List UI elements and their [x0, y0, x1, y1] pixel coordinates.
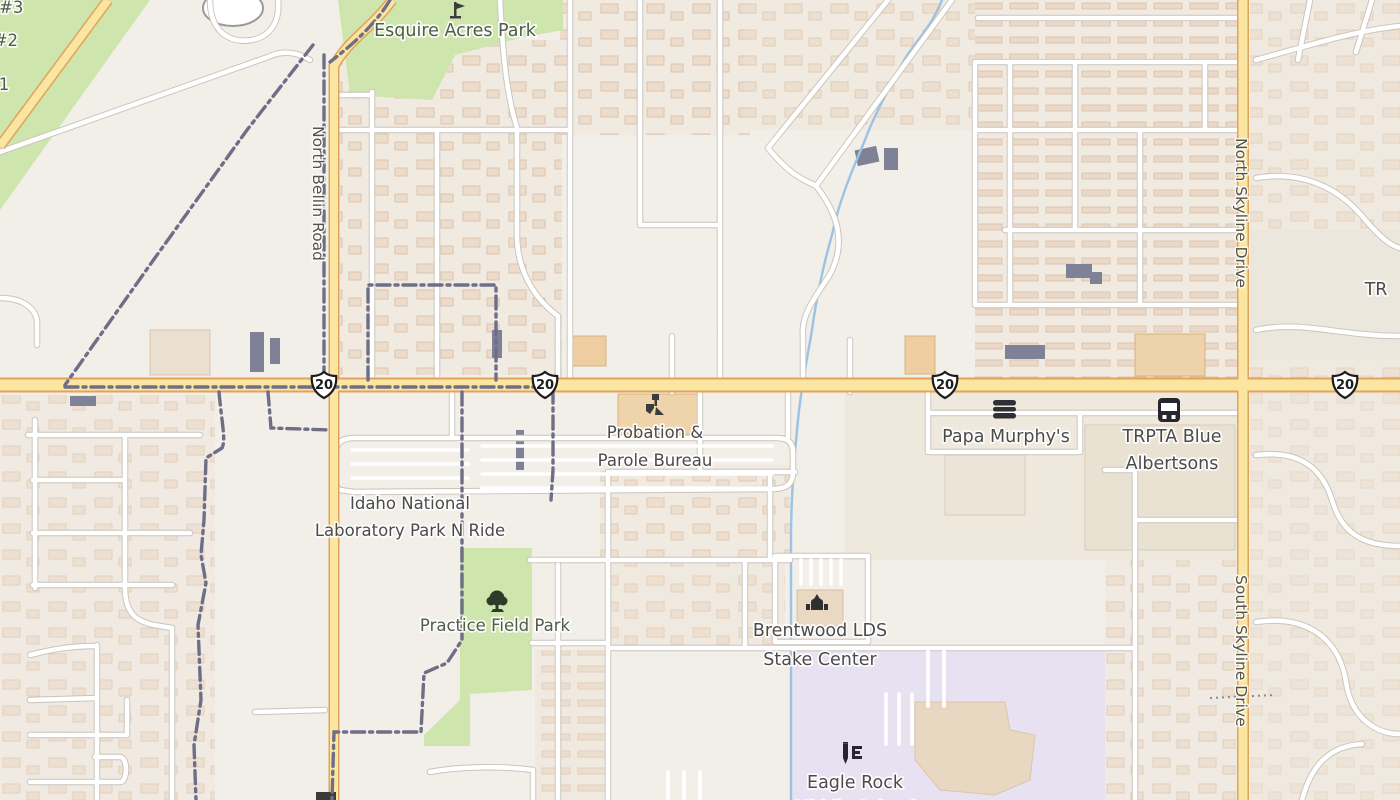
brentwood-label-line1: Brentwood LDS [753, 621, 887, 641]
map-svg: 20 20 20 20 [0, 0, 1400, 800]
inl-park-n-ride-label-line2: Laboratory Park N Ride [315, 521, 505, 540]
trpta-blue-label: TRPTA Blue [1122, 427, 1222, 447]
field3-label: eld #3 [0, 0, 23, 17]
route-shield-label: 20 [315, 378, 333, 393]
route-shield-label: 20 [1336, 378, 1354, 393]
inl-park-n-ride-label-line1: Idaho National [350, 494, 470, 513]
brentwood-label-line2: Stake Center [763, 650, 877, 670]
tr-partial-label: TR [1364, 280, 1388, 300]
probation-parole-label-line1: Probation & [607, 423, 704, 442]
bus-stop-icon [1158, 398, 1180, 422]
probation-parole-label-line2: Parole Bureau [598, 451, 713, 470]
south-skyline-drive-label: South Skyline Drive [1232, 575, 1250, 727]
route-shield-label: 20 [536, 378, 554, 393]
field1-label: 1 [0, 75, 9, 94]
map-canvas[interactable]: 20 20 20 20 [0, 0, 1400, 800]
esquire-acres-park-label: Esquire Acres Park [374, 21, 537, 41]
north-bellin-road-label: North Bellin Road [309, 126, 327, 261]
fast-food-icon [993, 400, 1016, 419]
eagle-rock-label-line1: Eagle Rock [807, 773, 904, 793]
albertsons-label: Albertsons [1126, 454, 1219, 474]
papa-murphys-label: Papa Murphy's [942, 427, 1070, 447]
north-skyline-drive-label: North Skyline Drive [1232, 138, 1250, 288]
field2-label: d #2 [0, 31, 18, 50]
route-shield-label: 20 [936, 378, 954, 393]
practice-field-park-label: Practice Field Park [420, 616, 571, 635]
